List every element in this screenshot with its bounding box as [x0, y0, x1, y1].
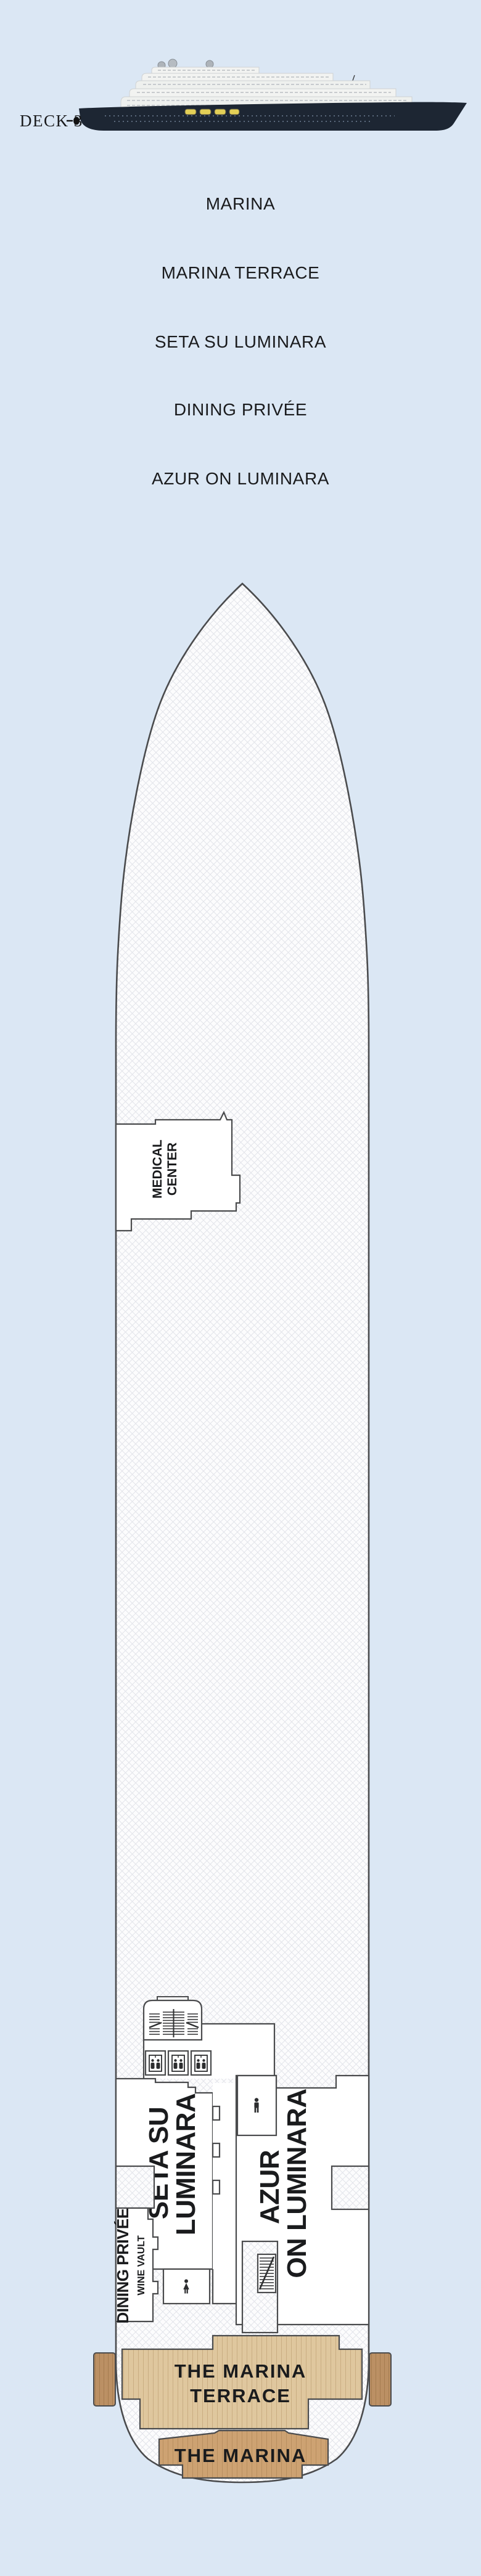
venue-item: SETA SU LUMINARA [155, 332, 326, 351]
dining-privee-room: DINING PRIVÉE WINE VAULT [113, 2208, 158, 2324]
stair-strip [242, 2241, 277, 2333]
ladies-restroom [163, 2269, 210, 2304]
service-space [332, 2166, 369, 2209]
service-space [116, 2166, 154, 2208]
dining-privee-label: DINING PRIVÉE [113, 2208, 132, 2323]
azur-on-luminara-label: ON LUMINARA [282, 2089, 312, 2278]
medical-center-label: CENTER [165, 1143, 179, 1196]
venue-item: AZUR ON LUMINARA [152, 469, 329, 488]
marina-platform-port [94, 2353, 115, 2406]
venue-item: DINING PRIVÉE [174, 400, 307, 419]
azur-on-luminara-room: AZUR ON LUMINARA [236, 2076, 369, 2333]
deck-marker-dot-icon [73, 117, 80, 125]
marina-label: THE MARINA [175, 2445, 307, 2466]
deck-header: DECK 3 [20, 112, 83, 130]
radar-dome-icon [206, 60, 213, 68]
seta-su-luminara-label: LUMINARA [171, 2093, 201, 2236]
ship-illustration [79, 59, 467, 131]
azur-on-luminara-label: AZUR [255, 2150, 285, 2224]
deck-plan: MEDICAL CENTER [94, 584, 391, 2482]
venue-item: MARINA TERRACE [162, 263, 320, 282]
marina-deck: THE MARINA [159, 2431, 328, 2478]
deck-plan-page: DECK 3 MARINA MARINA TERRACE SETA SU LUM… [0, 0, 481, 2576]
wine-vault-label: WINE VAULT [136, 2235, 147, 2295]
mens-restroom [237, 2076, 276, 2135]
medical-center-label: MEDICAL [150, 1139, 165, 1199]
venue-list: MARINA MARINA TERRACE SETA SU LUMINARA D… [152, 194, 329, 488]
marina-terrace-label: THE MARINA [175, 2360, 307, 2382]
radar-dome-icon [168, 59, 177, 68]
marina-platform-starboard [369, 2353, 391, 2406]
marina-terrace-label: TERRACE [190, 2385, 291, 2407]
venue-item: MARINA [206, 194, 276, 213]
elevator-bank [146, 2051, 211, 2075]
